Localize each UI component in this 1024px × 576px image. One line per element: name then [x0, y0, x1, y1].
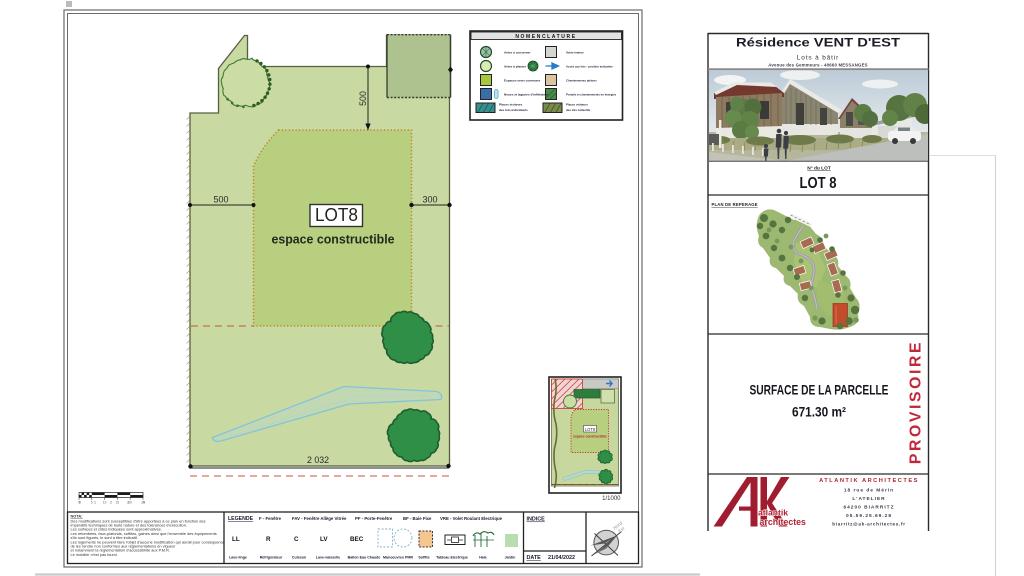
svg-text:L'ATELIER: L'ATELIER — [852, 496, 885, 502]
svg-text:05.59.25.69.28: 05.59.25.69.28 — [846, 513, 892, 519]
svg-text:SURFACE DE LA PARCELLE: SURFACE DE LA PARCELLE — [750, 382, 889, 398]
svg-text:N° du LOT: N° du LOT — [807, 166, 831, 172]
svg-text:64200 BIARRITZ: 64200 BIARRITZ — [843, 505, 894, 511]
svg-text:architectes: architectes — [760, 517, 807, 527]
svg-text:PROVISOIRE: PROVISOIRE — [908, 340, 925, 464]
svg-text:Lots à bâtir: Lots à bâtir — [797, 55, 839, 62]
svg-text:ATLANTIK ARCHITECTES: ATLANTIK ARCHITECTES — [819, 478, 919, 484]
svg-text:atlantik: atlantik — [758, 508, 788, 518]
svg-text:biarritz@ak-architectes.fr: biarritz@ak-architectes.fr — [832, 522, 906, 527]
svg-text:18 rue de Mérin: 18 rue de Mérin — [844, 488, 894, 494]
svg-text:671.30 m²: 671.30 m² — [792, 403, 846, 419]
svg-text:LOT 8: LOT 8 — [800, 175, 837, 192]
svg-text:Avenue des Gemmeurs - 40660 ME: Avenue des Gemmeurs - 40660 MESSANGES — [768, 63, 867, 68]
svg-text:Résidence VENT D'EST: Résidence VENT D'EST — [736, 37, 900, 50]
svg-text:PLAN DE REPERAGE: PLAN DE REPERAGE — [712, 202, 758, 207]
